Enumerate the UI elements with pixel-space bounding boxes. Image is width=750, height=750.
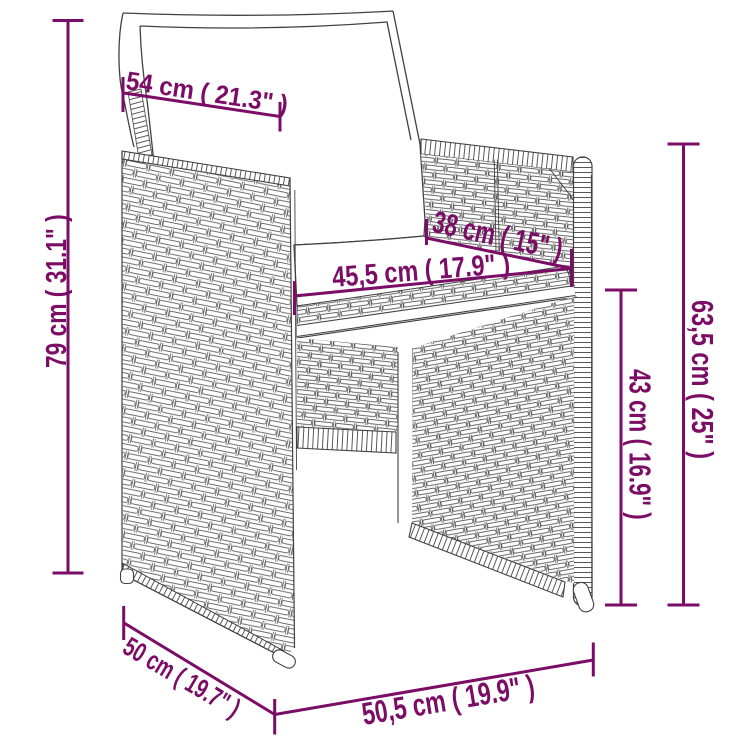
svg-text:63,5 cm ( 25" ): 63,5 cm ( 25" ) [685,300,720,459]
svg-text:43 cm ( 16.9" ): 43 cm ( 16.9" ) [623,369,657,520]
svg-text:79 cm ( 31.1" ): 79 cm ( 31.1" ) [39,214,72,368]
